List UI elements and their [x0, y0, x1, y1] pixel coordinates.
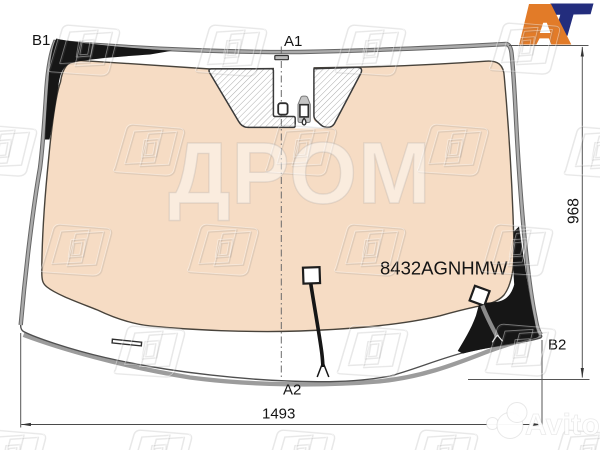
svg-text:968: 968 [566, 198, 583, 224]
svg-text:1493: 1493 [262, 406, 295, 423]
svg-text:A1: A1 [284, 33, 302, 50]
svg-text:Avito: Avito [525, 409, 600, 442]
svg-text:ДРОМ: ДРОМ [168, 125, 431, 222]
svg-text:B1: B1 [32, 32, 50, 49]
svg-text:A2: A2 [283, 382, 301, 399]
svg-text:8432AGNHMW: 8432AGNHMW [380, 258, 508, 279]
